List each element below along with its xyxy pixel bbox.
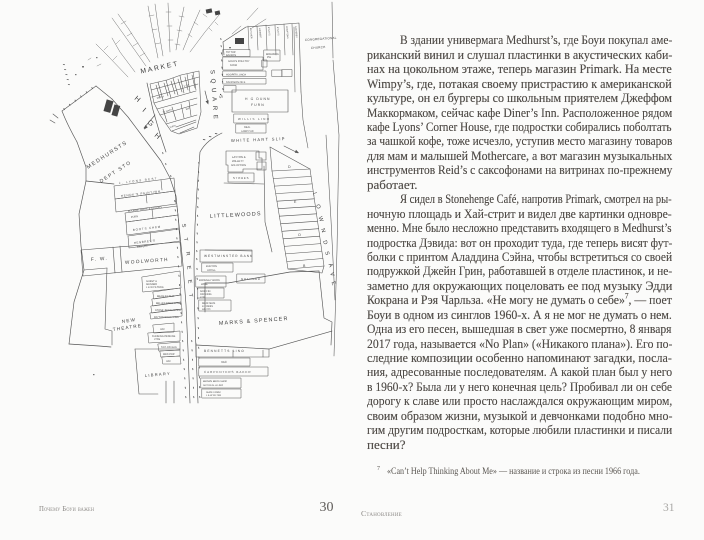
svg-text:LAMP FUR: LAMP FUR (241, 130, 254, 133)
svg-text:J. LYONS REST: J. LYONS REST (119, 176, 159, 185)
svg-text:LAMBERT: LAMBERT (258, 28, 262, 39)
svg-text:AG CO: AG CO (202, 308, 210, 311)
svg-text:CHURCH: CHURCH (311, 45, 326, 50)
svg-text:PAYTON BROS WINE: PAYTON BROS WINE (154, 316, 179, 319)
svg-text:TAYLOR GAS: TAYLOR GAS (161, 346, 177, 349)
svg-text:REAL: REAL (244, 126, 251, 129)
svg-text:WILLETT: WILLETT (232, 159, 244, 163)
svg-text:STONE JEW MASTER: STONE JEW MASTER (155, 309, 181, 312)
svg-text:MARKET: MARKET (140, 60, 180, 75)
svg-text:E: E (330, 281, 337, 287)
svg-text:WILLIS LINO: WILLIS LINO (238, 117, 270, 121)
svg-text:•S: •S (218, 93, 224, 98)
svg-text:FURN: FURN (169, 124, 176, 129)
svg-text:BENNETTS LINO: BENNETTS LINO (204, 349, 245, 353)
svg-text:I: I (141, 106, 148, 114)
svg-text:BOURNE WHITE & TAILORS: BOURNE WHITE & TAILORS (128, 206, 163, 213)
svg-text:D: D (321, 240, 328, 246)
svg-text:F. W.: F. W. (91, 256, 109, 263)
svg-text:BEASLEY THE: BEASLEY THE (157, 295, 174, 298)
svg-text:FURN: FURN (131, 215, 139, 219)
svg-text:T: T (187, 293, 194, 298)
svg-text:WESTMINSTER BANK: WESTMINSTER BANK (204, 254, 253, 258)
svg-text:SQUARE: SQUARE (209, 70, 220, 124)
svg-text:LITTLEWOODS: LITTLEWOODS (210, 211, 262, 220)
svg-text:EYLOTS: EYLOTS (276, 27, 280, 36)
svg-text:ANT DEAL & LINO: ANT DEAL & LINO (203, 384, 223, 387)
svg-text:H G DUNN: H G DUNN (245, 97, 271, 101)
svg-text:L & W FILTERS: L & W FILTERS (146, 286, 164, 289)
svg-text:THEATRE: THEATRE (112, 323, 142, 332)
svg-text:PW: PW (267, 56, 272, 59)
svg-text:VAC: VAC (166, 360, 171, 363)
svg-text:BROWN BROS SHOP: BROWN BROS SHOP (203, 380, 227, 383)
svg-text:HENDK'S PAINT/WH: HENDK'S PAINT/WH (121, 189, 161, 198)
svg-text:GRANGER: GRANGER (241, 277, 261, 281)
svg-text:LTDS: LTDS (154, 338, 161, 341)
svg-text:BELLES BROS WINE: BELLES BROS WINE (156, 302, 181, 305)
svg-text:CANTERBY: CANTERBY (294, 26, 298, 39)
svg-text:G: G (146, 118, 156, 129)
svg-text:S: S (323, 251, 330, 257)
svg-text:O: O (314, 204, 321, 211)
svg-text:H: H (133, 94, 143, 104)
svg-text:R: R (184, 251, 191, 256)
svg-text:WHITE HART SLIP: WHITE HART SLIP (231, 136, 286, 143)
svg-text:BAKERS: BAKERS (226, 54, 236, 57)
svg-text:BROMLEY BROS: BROMLEY BROS (199, 279, 220, 282)
svg-text:COMPTONS: COMPTONS (285, 26, 289, 39)
svg-text:A: A (327, 263, 334, 269)
svg-text:LIBRARY: LIBRARY (145, 371, 171, 378)
svg-text:MED POP: MED POP (163, 353, 175, 356)
svg-text:VAC: VAC (221, 360, 228, 364)
svg-text:HOTEL: HOTEL (207, 269, 216, 272)
svg-text:T: T (182, 237, 189, 242)
svg-text:EYLOTS: EYLOTS (267, 27, 271, 36)
svg-text:MARKS & SPENCER: MARKS & SPENCER (219, 316, 289, 327)
svg-text:DAVIDSON OILS: DAVIDSON OILS (226, 81, 246, 84)
svg-text:S: S (180, 223, 187, 228)
svg-text:WOOLWORTH: WOOLWORTH (125, 257, 169, 266)
svg-text:H: H (153, 131, 163, 141)
svg-text:D: D (288, 165, 291, 169)
svg-text:SOLICITORS: SOLICITORS (231, 164, 246, 167)
svg-text:CARPENTERS BAKER: CARPENTERS BAKER (204, 370, 252, 374)
svg-text:GOLD'S POULTRY: GOLD'S POULTRY (228, 60, 250, 63)
svg-text:BURTON: BURTON (206, 265, 217, 268)
svg-text:E: E (294, 200, 297, 204)
svg-text:E: E (186, 279, 193, 284)
svg-text:CONGREGATIONAL: CONGREGATIONAL (305, 36, 337, 42)
svg-text:ST MARY: ST MARY (162, 108, 173, 114)
svg-text:HOOPER LUNCH: HOOPER LUNCH (226, 74, 246, 77)
svg-text:LTD: LTD (200, 296, 205, 299)
svg-text:BUTCHER: BUTCHER (249, 28, 253, 39)
svg-text:E: E (185, 265, 192, 270)
svg-text:L & W FILTER: L & W FILTER (206, 394, 221, 397)
svg-text:VAC: VAC (160, 328, 165, 331)
svg-text:FURN: FURN (251, 103, 265, 107)
svg-text:O: O (298, 233, 301, 237)
svg-text:NEW: NEW (121, 317, 136, 324)
svg-text:STORES: STORES (233, 176, 249, 180)
svg-text:WINE: WINE (201, 283, 208, 286)
svg-text:L: L (311, 192, 318, 197)
svg-text:FARM: FARM (230, 64, 237, 67)
svg-text:N: N (319, 228, 326, 234)
